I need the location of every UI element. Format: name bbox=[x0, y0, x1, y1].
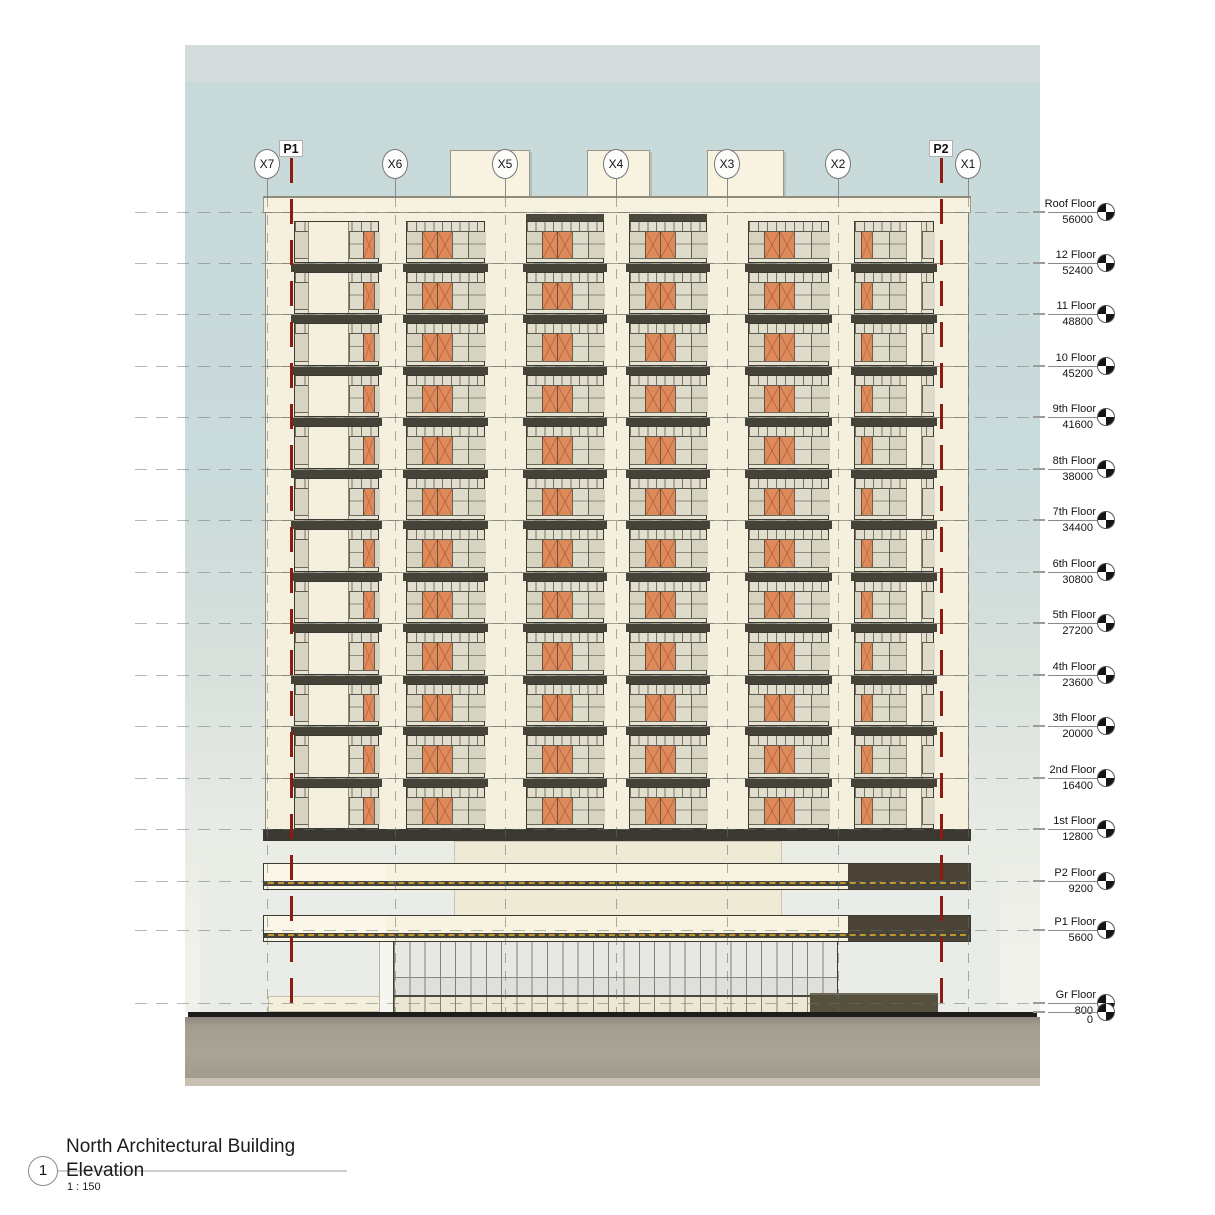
glazing-panel bbox=[872, 592, 889, 618]
glazing-panel bbox=[889, 489, 906, 515]
level-line-dashed bbox=[135, 469, 1044, 470]
glazing-panel bbox=[889, 437, 906, 464]
orange-door-panel bbox=[363, 489, 374, 515]
window-module bbox=[406, 581, 485, 623]
glazing-panel bbox=[374, 283, 380, 309]
glazing-panel bbox=[630, 334, 645, 361]
glazing-panel bbox=[794, 798, 811, 824]
window-module bbox=[854, 478, 934, 520]
glazing-panel bbox=[811, 386, 830, 412]
glazing-panel bbox=[889, 746, 906, 773]
window-module bbox=[854, 735, 934, 778]
glazing-panel bbox=[749, 746, 764, 773]
rooftop-box bbox=[450, 150, 530, 199]
view-number-bubble: 1 bbox=[28, 1156, 58, 1186]
level-elevation: 45200 bbox=[1020, 368, 1093, 381]
orange-door-panel bbox=[861, 386, 872, 412]
balcony-slab-band bbox=[745, 521, 832, 529]
window-module bbox=[854, 375, 934, 417]
orange-door-panel bbox=[861, 643, 872, 670]
glazing-panel bbox=[374, 746, 380, 773]
view-title-line2: Elevation bbox=[66, 1160, 144, 1182]
balcony-slab-band bbox=[626, 624, 710, 632]
facade-cream-column bbox=[906, 685, 922, 725]
glazing-panel bbox=[749, 386, 764, 412]
window-transom bbox=[407, 427, 484, 437]
glazing-panel bbox=[295, 592, 308, 618]
grid-leader-line bbox=[505, 178, 506, 196]
level-elevation: 16400 bbox=[1020, 780, 1093, 793]
grid-leader-line bbox=[395, 178, 396, 196]
facade-cream-column bbox=[308, 324, 349, 365]
glazing-panel bbox=[349, 540, 363, 567]
glazing-panel bbox=[811, 232, 830, 258]
orange-door-panel bbox=[363, 386, 374, 412]
glazing-panel bbox=[811, 798, 830, 824]
balcony-slab-band bbox=[523, 676, 607, 684]
ground-mass-light bbox=[185, 1078, 1040, 1086]
orange-door-panel bbox=[542, 334, 557, 361]
orange-door-panel bbox=[779, 746, 794, 773]
glazing-panel bbox=[794, 746, 811, 773]
level-line-dashed bbox=[135, 263, 1044, 264]
glazing-panel bbox=[675, 746, 691, 773]
window-transom bbox=[527, 273, 603, 283]
glazing-panel bbox=[922, 540, 935, 567]
glazing-panel bbox=[922, 232, 935, 258]
glazing-panel bbox=[811, 283, 830, 309]
orange-door-panel bbox=[861, 695, 872, 721]
orange-door-panel bbox=[660, 334, 675, 361]
window-module bbox=[629, 221, 707, 263]
orange-door-panel bbox=[645, 695, 660, 721]
balcony-slab-band bbox=[626, 315, 710, 323]
window-transom bbox=[527, 324, 603, 334]
orange-door-panel bbox=[542, 540, 557, 567]
window-sill bbox=[407, 567, 484, 571]
glazing-panel bbox=[572, 540, 588, 567]
orange-door-panel bbox=[645, 386, 660, 412]
level-tick bbox=[1033, 365, 1045, 367]
glazing-panel bbox=[407, 283, 422, 309]
window-module bbox=[294, 323, 379, 366]
orange-door-panel bbox=[779, 232, 794, 258]
glazing-panel bbox=[407, 746, 422, 773]
level-line bbox=[1048, 1003, 1098, 1004]
glazing-panel bbox=[407, 489, 422, 515]
window-transom bbox=[407, 479, 484, 489]
glazing-panel bbox=[630, 437, 645, 464]
window-module bbox=[629, 581, 707, 623]
window-transom bbox=[407, 530, 484, 540]
level-line bbox=[1048, 417, 1098, 418]
glazing-panel bbox=[588, 540, 605, 567]
glazing-panel bbox=[527, 746, 542, 773]
glazing-panel bbox=[349, 746, 363, 773]
glazing-panel bbox=[374, 592, 380, 618]
level-line bbox=[1048, 263, 1098, 264]
glazing-panel bbox=[468, 643, 486, 670]
glazing-panel bbox=[675, 695, 691, 721]
window-module bbox=[526, 375, 604, 417]
level-label: 3th Floor bbox=[1020, 712, 1096, 725]
orange-door-panel bbox=[542, 489, 557, 515]
orange-door-panel bbox=[645, 489, 660, 515]
window-module bbox=[748, 478, 829, 520]
glazing-panel bbox=[889, 283, 906, 309]
balcony-slab-band bbox=[626, 727, 710, 735]
window-transom bbox=[527, 376, 603, 386]
window-module bbox=[406, 272, 485, 314]
window-module bbox=[406, 684, 485, 726]
elevation-sheet: X7X6X5X4X3X2X1P1P2Roof Floor5600012 Floo… bbox=[0, 0, 1215, 1215]
window-sill bbox=[630, 567, 706, 571]
balcony-slab-band bbox=[626, 573, 710, 581]
glazing-panel bbox=[349, 334, 363, 361]
balcony-slab-band bbox=[403, 521, 488, 529]
grid-line-vertical bbox=[395, 197, 396, 1012]
window-sill bbox=[749, 721, 828, 725]
glazing-panel bbox=[295, 643, 308, 670]
window-transom bbox=[630, 273, 706, 283]
grid-leader-line bbox=[968, 178, 969, 196]
window-sill bbox=[630, 309, 706, 313]
orange-door-panel bbox=[542, 746, 557, 773]
balcony-slab-band bbox=[523, 521, 607, 529]
glazing-panel bbox=[630, 489, 645, 515]
glazing-panel bbox=[794, 334, 811, 361]
glazing-panel bbox=[872, 695, 889, 721]
window-sill bbox=[749, 361, 828, 365]
view-scale: 1 : 150 bbox=[67, 1181, 101, 1193]
level-line-dashed bbox=[135, 726, 1044, 727]
orange-door-panel bbox=[660, 592, 675, 618]
glazing-panel bbox=[452, 437, 468, 464]
window-transom bbox=[407, 376, 484, 386]
orange-door-panel bbox=[422, 798, 437, 824]
level-line bbox=[1048, 314, 1098, 315]
glazing-panel bbox=[407, 695, 422, 721]
level-head-symbol bbox=[1097, 254, 1115, 272]
level-elevation: 9200 bbox=[1020, 883, 1093, 896]
orange-door-panel bbox=[660, 283, 675, 309]
window-sill bbox=[630, 412, 706, 416]
orange-door-panel bbox=[542, 437, 557, 464]
orange-door-panel bbox=[660, 540, 675, 567]
glazing-panel bbox=[407, 232, 422, 258]
glazing-panel bbox=[452, 643, 468, 670]
level-tick bbox=[1033, 211, 1045, 213]
window-transom bbox=[527, 530, 603, 540]
glazing-panel bbox=[691, 643, 708, 670]
window-module bbox=[629, 735, 707, 778]
orange-door-panel bbox=[363, 437, 374, 464]
window-module bbox=[294, 787, 379, 829]
level-line bbox=[1048, 1012, 1098, 1013]
orange-door-panel bbox=[437, 232, 452, 258]
orange-door-panel bbox=[557, 489, 572, 515]
glazing-panel bbox=[691, 798, 708, 824]
balcony-slab-band bbox=[851, 315, 937, 323]
balcony-slab-band bbox=[403, 624, 488, 632]
level-head-symbol bbox=[1097, 717, 1115, 735]
glazing-panel bbox=[872, 232, 889, 258]
glazing-panel bbox=[675, 540, 691, 567]
orange-door-panel bbox=[764, 695, 779, 721]
orange-door-panel bbox=[764, 798, 779, 824]
window-transom bbox=[407, 788, 484, 798]
level-line-dashed bbox=[135, 829, 1044, 830]
facade-cream-column bbox=[308, 736, 349, 777]
orange-door-panel bbox=[779, 334, 794, 361]
window-sill bbox=[527, 361, 603, 365]
glazing-panel bbox=[872, 746, 889, 773]
orange-door-panel bbox=[645, 437, 660, 464]
glazing-panel bbox=[588, 232, 605, 258]
glazing-panel bbox=[374, 386, 380, 412]
glazing-panel bbox=[630, 386, 645, 412]
window-transom bbox=[407, 685, 484, 695]
window-transom bbox=[749, 633, 828, 643]
window-module bbox=[629, 632, 707, 675]
orange-door-panel bbox=[422, 386, 437, 412]
orange-door-panel bbox=[363, 232, 374, 258]
level-label: 7th Floor bbox=[1020, 506, 1096, 519]
glazing-panel bbox=[675, 283, 691, 309]
glazing-panel bbox=[572, 437, 588, 464]
balcony-slab-band bbox=[745, 418, 832, 426]
window-module bbox=[406, 632, 485, 675]
level-label: Roof Floor bbox=[1020, 198, 1096, 211]
glazing-panel bbox=[452, 334, 468, 361]
window-module bbox=[854, 529, 934, 572]
balcony-slab-band bbox=[851, 727, 937, 735]
glazing-panel bbox=[468, 386, 486, 412]
window-transom bbox=[527, 427, 603, 437]
glazing-panel bbox=[295, 746, 308, 773]
glazing-panel bbox=[889, 695, 906, 721]
balcony-slab-band bbox=[403, 418, 488, 426]
window-sill bbox=[749, 515, 828, 519]
facade-cream-column bbox=[308, 273, 349, 313]
window-transom bbox=[527, 222, 603, 232]
glazing-panel bbox=[468, 540, 486, 567]
balcony-slab-band bbox=[745, 315, 832, 323]
facade-cream-column bbox=[906, 479, 922, 519]
balcony-slab-band bbox=[745, 367, 832, 375]
orange-door-panel bbox=[779, 540, 794, 567]
level-line-dashed bbox=[135, 212, 1044, 213]
window-sill bbox=[527, 309, 603, 313]
orange-door-panel bbox=[363, 283, 374, 309]
glazing-panel bbox=[468, 746, 486, 773]
orange-door-panel bbox=[861, 232, 872, 258]
orange-door-panel bbox=[437, 437, 452, 464]
glazing-panel bbox=[749, 695, 764, 721]
window-module bbox=[406, 323, 485, 366]
balcony-slab-band bbox=[291, 470, 382, 478]
level-elevation: 0 bbox=[1020, 1014, 1093, 1027]
glazing-panel bbox=[794, 489, 811, 515]
glazing-panel bbox=[922, 798, 935, 824]
window-sill bbox=[527, 258, 603, 262]
balcony-slab-band bbox=[851, 264, 937, 272]
window-module bbox=[526, 787, 604, 829]
level-line-dashed bbox=[135, 675, 1044, 676]
orange-door-panel bbox=[422, 746, 437, 773]
balcony-slab-band bbox=[403, 676, 488, 684]
glazing-panel bbox=[749, 334, 764, 361]
glazing-panel bbox=[691, 746, 708, 773]
balcony-slab-band bbox=[626, 470, 710, 478]
orange-door-panel bbox=[779, 592, 794, 618]
glazing-panel bbox=[922, 437, 935, 464]
window-transom bbox=[749, 427, 828, 437]
glazing-panel bbox=[527, 437, 542, 464]
glazing-panel bbox=[675, 489, 691, 515]
facade-cream-column bbox=[308, 479, 349, 519]
section-line-red bbox=[940, 158, 943, 1012]
window-transom bbox=[407, 736, 484, 746]
glazing-panel bbox=[527, 798, 542, 824]
orange-door-panel bbox=[437, 746, 452, 773]
facade-cream-column bbox=[906, 427, 922, 468]
window-sill bbox=[749, 309, 828, 313]
glazing-panel bbox=[295, 540, 308, 567]
window-module bbox=[629, 529, 707, 572]
window-sill bbox=[407, 309, 484, 313]
glazing-panel bbox=[691, 540, 708, 567]
window-module bbox=[526, 323, 604, 366]
facade-cream-column bbox=[906, 582, 922, 622]
glazing-panel bbox=[452, 540, 468, 567]
glazing-panel bbox=[374, 232, 380, 258]
orange-door-panel bbox=[422, 592, 437, 618]
level-tick bbox=[1033, 725, 1045, 727]
orange-door-panel bbox=[422, 283, 437, 309]
window-transom bbox=[749, 788, 828, 798]
orange-door-panel bbox=[764, 437, 779, 464]
level-label: 4th Floor bbox=[1020, 661, 1096, 674]
window-module bbox=[526, 529, 604, 572]
window-sill bbox=[407, 670, 484, 674]
glazing-panel bbox=[872, 283, 889, 309]
window-transom bbox=[630, 582, 706, 592]
glazing-panel bbox=[872, 540, 889, 567]
window-module bbox=[854, 272, 934, 314]
glazing-panel bbox=[889, 334, 906, 361]
balcony-slab-band bbox=[523, 264, 607, 272]
glazing-panel bbox=[374, 334, 380, 361]
window-transom bbox=[749, 530, 828, 540]
orange-door-panel bbox=[422, 643, 437, 670]
orange-door-panel bbox=[660, 695, 675, 721]
orange-door-panel bbox=[437, 334, 452, 361]
glazing-panel bbox=[572, 643, 588, 670]
glazing-panel bbox=[811, 592, 830, 618]
balcony-slab-band bbox=[403, 727, 488, 735]
orange-door-panel bbox=[363, 798, 374, 824]
glazing-panel bbox=[468, 334, 486, 361]
glazing-panel bbox=[295, 489, 308, 515]
level-line-dashed bbox=[135, 417, 1044, 418]
glazing-panel bbox=[572, 386, 588, 412]
orange-door-panel bbox=[557, 540, 572, 567]
glazing-panel bbox=[922, 592, 935, 618]
grid-bubble: X7 bbox=[254, 149, 280, 179]
level-head-symbol bbox=[1097, 820, 1115, 838]
glazing-panel bbox=[349, 695, 363, 721]
glazing-panel bbox=[872, 798, 889, 824]
view-title-line1: North Architectural Building bbox=[66, 1136, 295, 1158]
glazing-panel bbox=[527, 386, 542, 412]
grid-leader-line bbox=[727, 178, 728, 196]
glazing-panel bbox=[588, 643, 605, 670]
glazing-panel bbox=[374, 643, 380, 670]
glazing-panel bbox=[588, 798, 605, 824]
glazing-panel bbox=[630, 643, 645, 670]
level-head-symbol bbox=[1097, 614, 1115, 632]
glazing-panel bbox=[811, 334, 830, 361]
orange-door-panel bbox=[422, 232, 437, 258]
glazing-panel bbox=[588, 746, 605, 773]
window-module bbox=[748, 272, 829, 314]
level-label: 10 Floor bbox=[1020, 352, 1096, 365]
balcony-slab-band bbox=[291, 624, 382, 632]
window-sill bbox=[630, 258, 706, 262]
orange-door-panel bbox=[645, 232, 660, 258]
window-sill bbox=[527, 824, 603, 828]
window-module bbox=[629, 426, 707, 469]
glazing-panel bbox=[811, 489, 830, 515]
orange-door-panel bbox=[660, 232, 675, 258]
orange-door-panel bbox=[557, 437, 572, 464]
glazing-panel bbox=[349, 489, 363, 515]
window-module bbox=[526, 684, 604, 726]
glazing-panel bbox=[452, 746, 468, 773]
level-line bbox=[1048, 572, 1098, 573]
window-sill bbox=[630, 721, 706, 725]
window-module bbox=[854, 323, 934, 366]
window-transom bbox=[630, 479, 706, 489]
glazing-panel bbox=[572, 334, 588, 361]
balcony-slab-band bbox=[745, 676, 832, 684]
orange-door-panel bbox=[779, 798, 794, 824]
glazing-panel bbox=[468, 695, 486, 721]
level-elevation: 48800 bbox=[1020, 316, 1093, 329]
orange-door-panel bbox=[363, 592, 374, 618]
orange-door-panel bbox=[660, 437, 675, 464]
window-sill bbox=[630, 361, 706, 365]
level-head-symbol bbox=[1097, 769, 1115, 787]
glazing-panel bbox=[527, 232, 542, 258]
glazing-panel bbox=[675, 334, 691, 361]
level-elevation: 34400 bbox=[1020, 522, 1093, 535]
view-number: 1 bbox=[39, 1162, 47, 1179]
orange-door-panel bbox=[363, 746, 374, 773]
glazing-panel bbox=[349, 232, 363, 258]
balcony-slab-band bbox=[523, 624, 607, 632]
level-elevation: 38000 bbox=[1020, 471, 1093, 484]
window-transom bbox=[630, 324, 706, 334]
window-module bbox=[748, 684, 829, 726]
glazing-panel bbox=[889, 386, 906, 412]
glazing-panel bbox=[349, 283, 363, 309]
balcony-slab-band bbox=[626, 264, 710, 272]
level-elevation: 56000 bbox=[1020, 214, 1093, 227]
glazing-panel bbox=[468, 489, 486, 515]
ground-mass bbox=[185, 1017, 1040, 1078]
